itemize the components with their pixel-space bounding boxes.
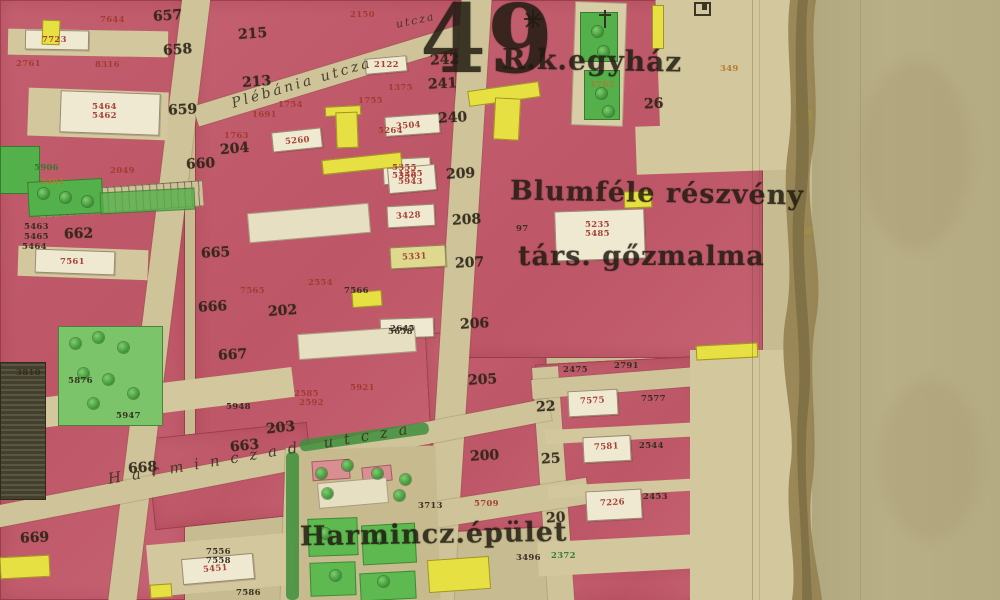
parcel-number: 2049 [110,166,135,176]
block-number: 26 [644,96,664,113]
parcel-number: 2122 [374,60,399,70]
parcel-number: 2544 [639,441,664,451]
parcel-number: 7226 [600,497,625,508]
parcel-number: 1375 [388,83,413,93]
parcel-number: 1754 [278,100,303,110]
parcel-number: 5921 [350,383,375,393]
parcel-number: 5947 [116,411,141,421]
parcel-number: 3496 [516,553,541,563]
parcel-number: 5658 [388,327,413,337]
parcel-number: 3428 [396,210,421,221]
parcel-number: 5461 [40,177,65,187]
parcel-number: 2453 [643,492,668,502]
parcel-number: 5485 [585,229,610,239]
parcel-number: 1691 [252,110,277,120]
parcel-number: 1755 [358,96,383,106]
block-number: 657 [152,7,182,25]
block-number: 666 [198,298,228,316]
map-title-label: társ. gőzmalma [518,241,765,272]
parcel-number: 3810 [16,368,41,378]
parcel-number: 7586 [236,588,261,598]
street-name-label: Harminczad utcza [107,418,420,488]
block-number: 204 [219,140,250,158]
block-number: 22 [536,399,556,416]
parcel-number: 1762 [590,80,615,90]
block-number: 669 [20,529,50,547]
block-number: 209 [446,165,476,183]
parcel-number: 7581 [594,441,619,452]
parcel-number: 3504 [396,120,421,132]
block-number: 240 [438,109,468,127]
block-number: 205 [468,371,498,389]
map-title-label: R.k.egyház [502,42,683,78]
map-title-label: Blumféle részvény [510,175,805,211]
parcel-number: 7561 [60,257,85,267]
parcel-number: 7723 [42,35,67,45]
parcel-number: 7644 [100,15,125,25]
block-number: 202 [267,302,297,320]
cadastral-map-sheet: 6576586596606626656666676686696632032042… [0,0,1000,600]
block-number: 659 [168,101,198,119]
parcel-number: 7577 [641,394,666,404]
parcel-number: 2592 [299,398,324,408]
parcel-number: 5462 [92,111,117,121]
parcel-number: 2372 [551,551,576,561]
block-number: 206 [460,315,490,333]
parcel-number: 5943 [398,177,423,187]
block-number: 25 [541,451,561,468]
parcel-number: 3713 [418,501,443,511]
block-number: 215 [237,25,267,43]
block-number: 658 [162,41,192,59]
labels-layer: 6576586596606626656666676686696632032042… [0,0,1000,600]
parcel-number: 97 [516,224,528,234]
parcel-number: 349 [720,64,739,74]
parcel-number: 7565 [240,286,265,296]
parcel-number: 2791 [614,361,639,371]
block-number: 667 [218,346,248,364]
block-number: 660 [186,155,216,173]
parcel-number: 2761 [16,59,41,69]
block-number: 200 [470,447,500,465]
parcel-number: 7566 [344,286,369,296]
map-title-label: Harmincz.épület [300,517,568,553]
parcel-number: 5465 [24,232,49,242]
parcel-number: 5331 [402,251,427,262]
parcel-number: 5463 [24,222,49,232]
parcel-number: 5906 [34,163,59,173]
parcel-number: 8316 [95,60,120,70]
block-number: 208 [452,211,482,229]
block-number: 665 [201,244,231,262]
parcel-number: 5948 [226,402,251,412]
block-number: 203 [265,419,296,438]
parcel-number: 5876 [68,376,93,386]
parcel-number: 5464 [22,242,47,252]
parcel-number: 5260 [285,135,311,147]
parcel-number: 2475 [563,365,588,375]
parcel-number: 2554 [308,278,333,288]
parcel-number: 7575 [580,395,605,406]
block-number: 207 [455,254,485,272]
block-number: 662 [64,225,94,242]
parcel-number: 5451 [203,563,229,575]
parcel-number: 2150 [350,10,375,20]
parcel-number: 5709 [474,499,499,509]
parcel-number: 1763 [224,131,249,141]
